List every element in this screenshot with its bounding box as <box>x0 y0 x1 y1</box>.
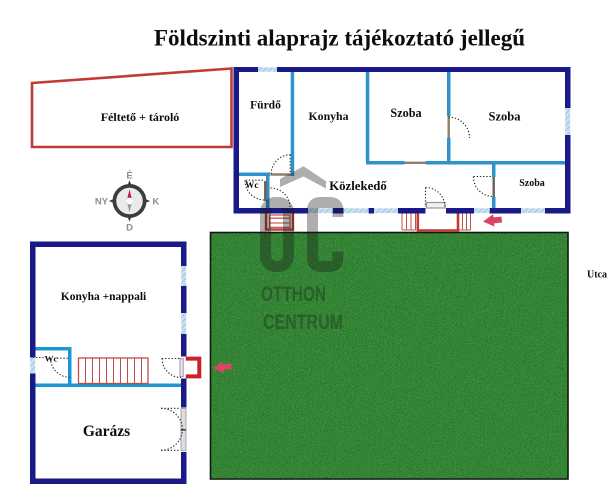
svg-text:Konyha: Konyha <box>309 109 349 123</box>
svg-text:Fürdő: Fürdő <box>250 99 281 111</box>
svg-text:K: K <box>152 196 159 207</box>
svg-text:Féltető + tároló: Féltető + tároló <box>101 110 180 124</box>
svg-text:Szoba: Szoba <box>519 178 545 189</box>
svg-text:Földszinti alaprajz tájékoztat: Földszinti alaprajz tájékoztató jellegű <box>154 26 525 51</box>
svg-text:Közlekedő: Közlekedő <box>329 179 387 193</box>
svg-text:Szoba: Szoba <box>390 106 421 120</box>
svg-text:Garázs: Garázs <box>83 423 130 440</box>
svg-text:CENTRUM: CENTRUM <box>263 310 343 334</box>
svg-text:Konyha +nappali: Konyha +nappali <box>61 291 147 303</box>
svg-text:É: É <box>126 171 132 182</box>
svg-text:Utca: Utca <box>587 270 607 281</box>
svg-text:OTTHON: OTTHON <box>261 282 326 306</box>
svg-text:Szoba: Szoba <box>489 110 522 124</box>
svg-text:Wc: Wc <box>245 180 258 190</box>
svg-text:Wc: Wc <box>45 354 58 364</box>
svg-text:D: D <box>126 223 133 234</box>
svg-text:NY: NY <box>95 196 109 207</box>
